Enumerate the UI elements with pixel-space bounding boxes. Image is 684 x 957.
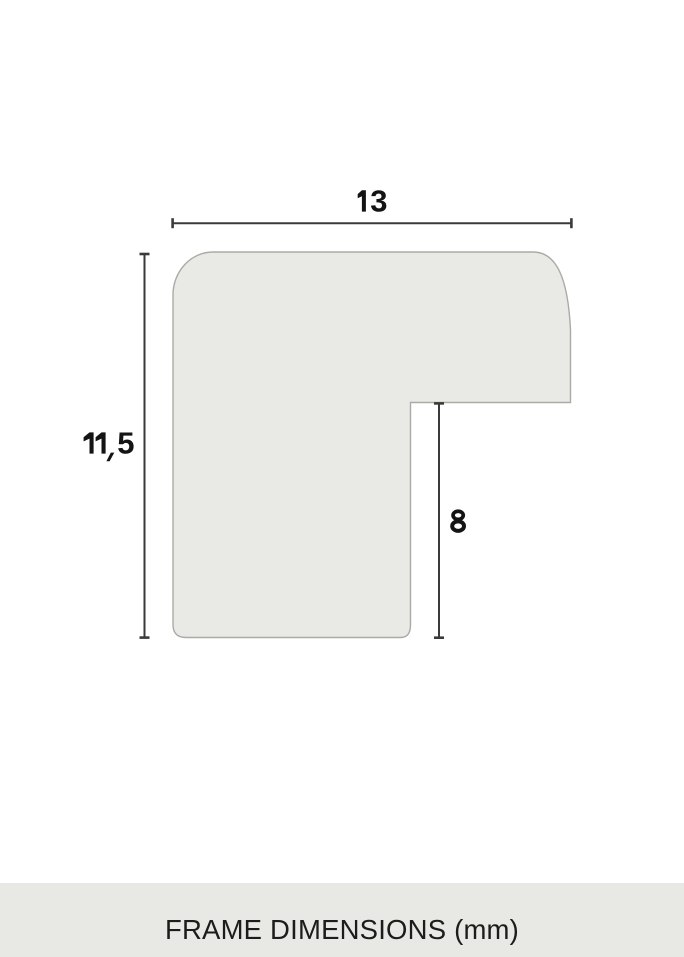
svg-text:3: 3 bbox=[370, 184, 387, 219]
svg-text:5: 5 bbox=[117, 426, 134, 461]
